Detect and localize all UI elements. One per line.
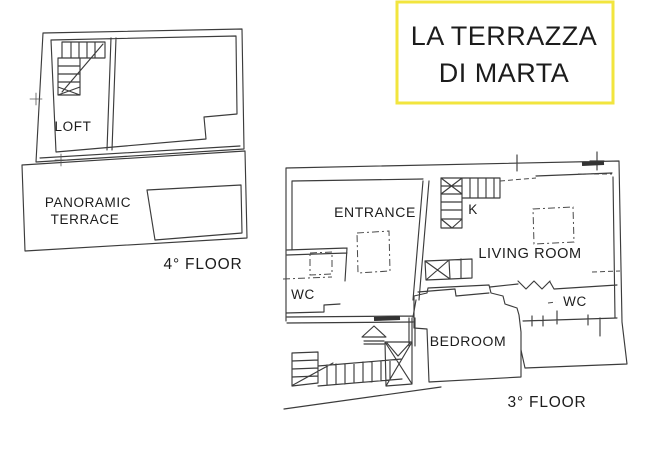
mid-staircase <box>425 259 472 280</box>
title-line-1: LA TERRAZZA <box>411 21 598 51</box>
entrance-dashed-square <box>357 231 390 273</box>
room-label-loft: LOFT <box>55 119 92 134</box>
living-room-dashed-square <box>533 207 574 244</box>
room-label-wc-right: WC <box>563 294 587 309</box>
room-label-wc-left: WC <box>291 287 315 302</box>
room-label-entrance: ENTRANCE <box>334 204 416 220</box>
plan-3rd-floor: ENTRANCE K LIVING ROOM WC BEDROOM WC 3° … <box>283 152 627 411</box>
room-label-terrace-line2: TERRACE <box>51 212 120 227</box>
room-label-living-room: LIVING ROOM <box>478 246 581 262</box>
floor-label-4: 4° FLOOR <box>164 256 243 273</box>
loft-staircase <box>58 42 105 95</box>
title-line-2: DI MARTA <box>439 58 570 88</box>
plan-4th-floor: LOFT PANORAMIC TERRACE 4° FLOOR <box>22 29 247 273</box>
main-staircase <box>284 342 441 409</box>
floor-plan-page: LOFT PANORAMIC TERRACE 4° FLOOR ENTRANCE… <box>0 0 650 450</box>
room-label-kitchen: K <box>468 202 478 217</box>
title-card: LA TERRAZZA DI MARTA <box>397 2 613 103</box>
room-label-terrace-line1: PANORAMIC <box>45 195 131 210</box>
entrance-door-arrow-icon <box>362 326 386 344</box>
floor-label-3: 3° FLOOR <box>508 394 587 411</box>
room-label-bedroom: BEDROOM <box>430 333 507 349</box>
floor-plan-canvas: LOFT PANORAMIC TERRACE 4° FLOOR ENTRANCE… <box>0 0 650 450</box>
wc-left-dashed-fixture <box>283 252 332 279</box>
